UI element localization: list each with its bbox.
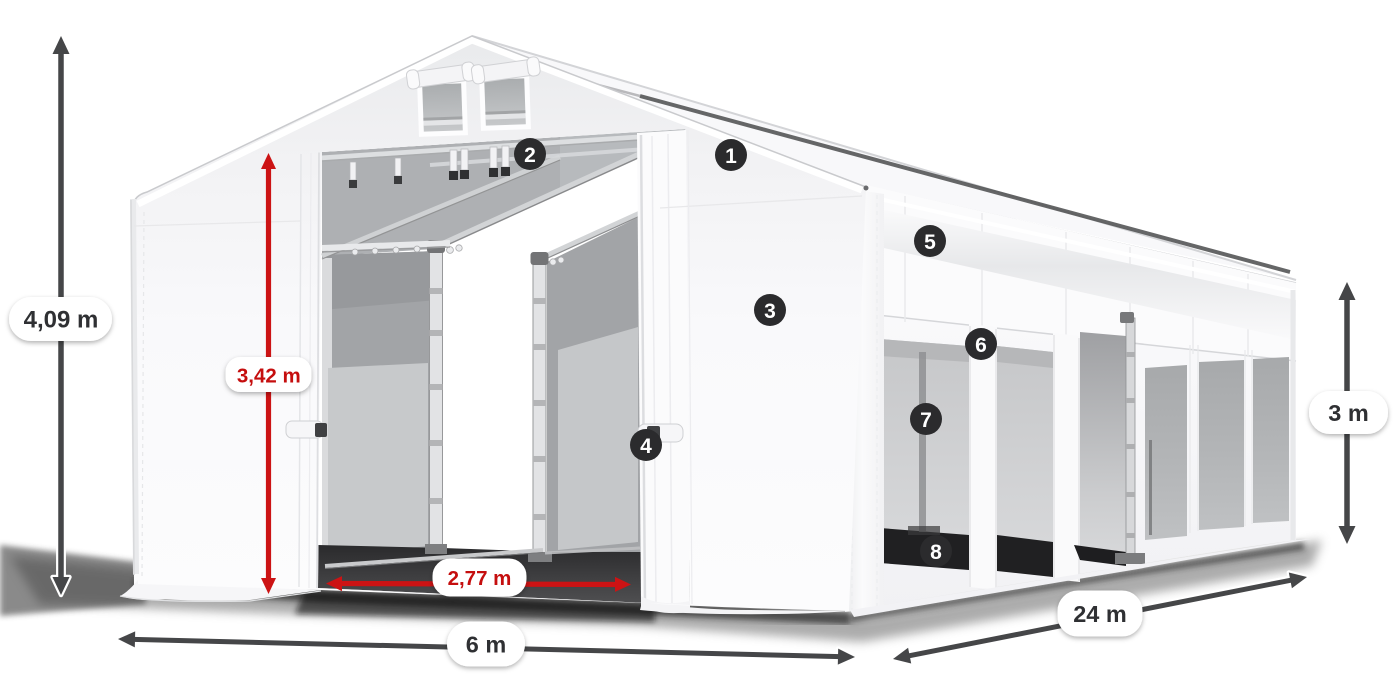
svg-text:6 m: 6 m (466, 632, 507, 658)
svg-text:5: 5 (924, 231, 936, 254)
svg-text:4,09 m: 4,09 m (24, 307, 99, 334)
svg-text:3,42 m: 3,42 m (237, 364, 301, 387)
svg-text:24 m: 24 m (1073, 601, 1127, 627)
svg-text:7: 7 (920, 409, 932, 432)
svg-text:3 m: 3 m (1328, 400, 1369, 426)
svg-text:3: 3 (764, 300, 776, 323)
svg-text:2,77 m: 2,77 m (448, 567, 512, 590)
svg-text:8: 8 (930, 541, 942, 564)
svg-text:6: 6 (975, 334, 987, 357)
svg-text:2: 2 (524, 144, 536, 167)
svg-text:1: 1 (725, 145, 737, 168)
svg-text:4: 4 (640, 435, 652, 458)
